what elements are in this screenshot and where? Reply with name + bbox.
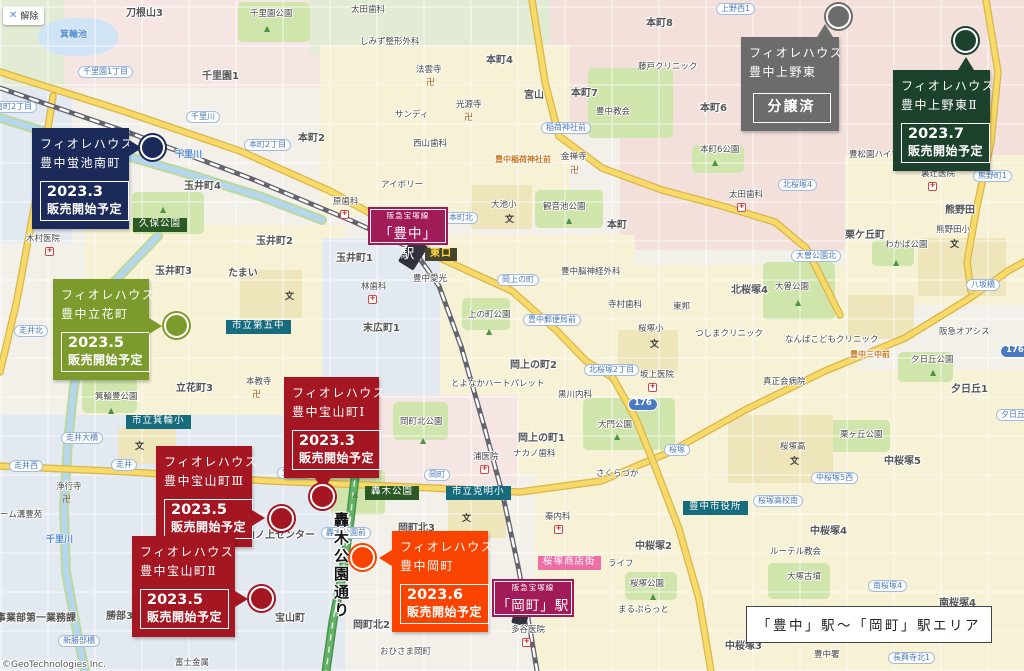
hospital-icon: ✚ xyxy=(340,210,349,219)
road-sign-label: 走井西 xyxy=(9,460,43,472)
facility-badge: 市立第五中 xyxy=(226,320,291,334)
district-label: 本町4 xyxy=(486,55,513,67)
property-marker xyxy=(826,4,851,29)
property-name-line: フィオレハウス xyxy=(901,77,985,96)
property-name-line: 豊中上野東 xyxy=(749,63,834,82)
property-name-line: 豊中宝山町Ⅱ xyxy=(140,562,230,581)
tree-icon: ▲ xyxy=(486,327,492,336)
place-label: ーム溝豊苑 xyxy=(0,511,42,521)
road-sign-label: 大曽公園北 xyxy=(791,250,841,262)
road-sign-label: 熊野町1 xyxy=(973,170,1012,182)
place-label: 富士金属 xyxy=(175,659,209,669)
place-label: 千里園公園 xyxy=(250,10,293,20)
place-label: ライフ xyxy=(608,560,634,570)
district-label: 末広町1 xyxy=(363,323,400,335)
park-badge: 轟木公園 xyxy=(365,486,419,500)
station-badge: 阪急宝塚線「岡町」駅 xyxy=(492,579,574,617)
place-label: 東邦 xyxy=(673,303,690,313)
property-callout: フィオレハウス豊中蛍池南町2023.3販売開始予定 xyxy=(32,128,129,229)
place-label: 西山歯科 xyxy=(413,140,447,150)
district-label: 宮山 xyxy=(524,90,544,102)
water-label: 箕輪池 xyxy=(60,30,87,40)
place-label: わかば公園 xyxy=(885,241,928,251)
place-label: 大門公園 xyxy=(598,421,632,431)
property-callout: フィオレハウス豊中上野東分譲済 xyxy=(741,37,839,131)
property-callout: フィオレハウス豊中宝山町Ⅰ2023.3販売開始予定 xyxy=(284,377,379,478)
tree-icon: ▲ xyxy=(566,216,572,225)
place-label: 桜塚高 xyxy=(780,443,806,453)
road-sign-label: 本町2丁目 xyxy=(244,139,291,151)
callout-pointer xyxy=(958,57,974,70)
place-label: 本教寺 xyxy=(246,378,272,388)
school-icon: 文 xyxy=(285,292,294,302)
district-label: たまい xyxy=(228,268,258,280)
map-canvas: 刀根山3千里園公園千里園1本町2玉井町4玉井町2玉井町3たまい玉井町1立花町3本… xyxy=(0,0,1024,671)
district-label: 北桜塚4 xyxy=(731,285,768,297)
property-name: フィオレハウス豊中宝山町Ⅱ xyxy=(140,543,230,580)
property-marker xyxy=(249,586,274,611)
property-callout: フィオレハウス豊中岡町2023.6販売開始予定 xyxy=(392,531,488,632)
place-label: 坂上医院 xyxy=(640,371,674,381)
callout-pointer xyxy=(252,510,265,526)
road-sign-label: 南桜塚4 xyxy=(868,580,907,592)
place-label: 太田歯科 xyxy=(351,6,385,16)
place-label: ナカノ歯科 xyxy=(513,450,556,460)
route-shield: 176 xyxy=(628,398,658,411)
school-icon: 文 xyxy=(462,514,471,524)
place-label: 金禅寺 xyxy=(561,153,587,163)
place-label: 豊中愛光 xyxy=(413,275,447,285)
sale-date: 分譲済 xyxy=(768,99,816,116)
place-label: 寺村歯科 xyxy=(608,301,642,311)
district-label: 山ノ上センター xyxy=(245,530,315,542)
place-label: 太田歯科 xyxy=(729,191,763,201)
hospital-icon: ✚ xyxy=(480,465,489,474)
district-label: 玉井町1 xyxy=(336,253,373,265)
property-callout: フィオレハウス豊中宝山町Ⅲ2023.5販売開始予定 xyxy=(156,446,252,547)
road-sign-label: 千里川 xyxy=(186,111,220,123)
place-label: 箕輪豊公園 xyxy=(95,393,138,403)
place-label: 光源寺 xyxy=(456,101,482,111)
place-label: 秦内科 xyxy=(545,513,571,523)
property-sale-date: 2023.3販売開始予定 xyxy=(292,430,381,469)
place-label: 栗ヶ丘公園 xyxy=(840,431,883,441)
sale-date: 2023.5 xyxy=(147,592,222,609)
property-marker xyxy=(140,135,165,160)
district-label: 玉井町3 xyxy=(155,266,192,278)
bus-stop-label: 豊中三中前 xyxy=(850,350,890,359)
water-label: 千里川 xyxy=(175,150,202,160)
hospital-icon: ✚ xyxy=(45,247,54,256)
sale-date: 2023.6 xyxy=(407,587,482,604)
district-label: 刀根山3 xyxy=(126,8,163,20)
district-label: 勝部3 xyxy=(106,611,133,623)
park-badge: 久保公園 xyxy=(133,218,187,232)
district-label: 本町6 xyxy=(700,103,727,115)
tree-icon: ▲ xyxy=(650,592,656,601)
hospital-icon: ✚ xyxy=(648,383,657,392)
tree-icon: ▲ xyxy=(264,24,270,33)
property-name-line: フィオレハウス xyxy=(40,135,124,154)
facility-badge: 市立克明小 xyxy=(446,486,511,500)
road-sign-label: 稲荷神社前 xyxy=(541,122,591,134)
property-sale-date: 2023.5販売開始予定 xyxy=(61,332,150,371)
road-sign-label: 北桜塚4 xyxy=(778,179,817,191)
place-label: 桜塚小 xyxy=(638,325,664,335)
sale-date: 2023.5 xyxy=(171,502,246,519)
property-name-line: フィオレハウス xyxy=(292,384,374,403)
station-line-name: 阪急宝塚線 xyxy=(496,582,570,593)
district-label: 岡上の町2 xyxy=(510,360,557,372)
property-name-line: フィオレハウス xyxy=(164,453,247,472)
sale-date: 2023.3 xyxy=(47,184,122,201)
place-label: 岡町北公園 xyxy=(400,418,443,428)
place-label: つしまクリニック xyxy=(695,330,763,340)
road-sign-label: 上野西1 xyxy=(716,3,755,15)
school-icon: 文 xyxy=(790,457,799,467)
district-label: 玉井町4 xyxy=(184,181,221,193)
place-label: 豊中脳神経外科 xyxy=(561,268,621,278)
hospital-icon: ✚ xyxy=(928,182,937,191)
facility-badge: 豊中市役所 xyxy=(683,501,748,515)
sale-status-text: 販売開始予定 xyxy=(908,144,983,159)
road-sign-label: 走井大橋 xyxy=(61,432,103,444)
road-sign-label: 南町2丁目 xyxy=(0,101,37,113)
facility-badge: 市立箕輪小 xyxy=(126,415,191,429)
district-label: 本町7 xyxy=(571,88,598,100)
place-label: とよなかハートパレット xyxy=(451,380,545,390)
place-label: サンディ xyxy=(395,111,428,121)
property-name-line: 豊中蛍池南町 xyxy=(40,154,124,173)
district-label: 栗ケ丘町 xyxy=(845,230,885,242)
area-title-banner: 「豊中」駅～「岡町」駅エリア xyxy=(746,606,992,643)
property-name-line: 豊中上野東Ⅱ xyxy=(901,96,985,115)
close-icon: ✕ xyxy=(9,10,17,21)
place-label: 豊中署 xyxy=(814,651,840,661)
district-label: 岡上の町1 xyxy=(518,433,565,445)
place-label: 原歯科 xyxy=(333,198,359,208)
sale-status-text: 販売開始予定 xyxy=(47,202,122,217)
place-label: 浦医院 xyxy=(473,453,499,463)
temple-icon: 卍 xyxy=(464,113,473,123)
clear-button[interactable]: ✕ 解除 xyxy=(3,7,44,25)
place-label: 熊野田小 xyxy=(936,226,970,236)
road-sign-label: 中桜塚5西 xyxy=(811,472,858,484)
property-name-line: フィオレハウス xyxy=(61,286,144,305)
callout-pointer xyxy=(235,591,248,607)
property-name: フィオレハウス豊中上野東Ⅱ xyxy=(901,77,985,114)
road-sign-label: 走井北 xyxy=(14,325,48,337)
place-label: 阪急オアシス xyxy=(939,328,990,338)
road-sign-label: 岡町 xyxy=(424,469,450,481)
place-label: 夕日丘公園 xyxy=(911,356,954,366)
place-label: 法雲寺 xyxy=(416,66,442,76)
school-icon: 文 xyxy=(505,215,514,225)
district-label: 中桜塚4 xyxy=(810,526,847,538)
temple-icon: 卍 xyxy=(62,495,71,505)
district-label: 玉井町2 xyxy=(256,236,293,248)
school-icon: 文 xyxy=(950,240,959,250)
sale-date: 2023.5 xyxy=(68,335,143,352)
property-sale-date: 2023.6販売開始予定 xyxy=(400,584,489,623)
water-label: 千里川 xyxy=(46,535,73,545)
property-callout: フィオレハウス豊中宝山町Ⅱ2023.5販売開始予定 xyxy=(132,536,235,637)
property-sale-date: 2023.5販売開始予定 xyxy=(140,589,229,628)
place-label: おひさま岡町 xyxy=(380,648,431,658)
place-label: 黒川内科 xyxy=(558,391,592,401)
map-attribution: ©GeoTechnologies Inc. xyxy=(2,660,106,670)
property-name: フィオレハウス豊中岡町 xyxy=(400,538,483,575)
place-label: 藤戸クリニック xyxy=(638,63,698,73)
place-label: 上の町公園 xyxy=(468,311,511,321)
district-label: 千里園1 xyxy=(202,71,239,83)
district-label: 夕日丘1 xyxy=(951,384,988,396)
property-marker xyxy=(953,28,978,53)
sale-status-text: 販売開始予定 xyxy=(171,520,246,535)
tree-icon: ▲ xyxy=(795,298,801,307)
district-label: 中桜塚2 xyxy=(635,541,672,553)
hospital-icon: ✚ xyxy=(368,295,377,304)
school-icon: 文 xyxy=(650,340,659,350)
place-label: まるぷらっと xyxy=(618,606,669,616)
road-sign-label: 本町北 xyxy=(444,212,478,224)
property-callout: フィオレハウス豊中上野東Ⅱ2023.7販売開始予定 xyxy=(893,70,990,171)
road-sign-label: 北桜塚2丁目 xyxy=(584,364,639,376)
place-label: 桜塚公園 xyxy=(630,580,664,590)
property-marker xyxy=(269,506,294,531)
district-label: 立花町3 xyxy=(176,383,213,395)
property-marker xyxy=(164,313,189,338)
road-sign-label: 夕日丘 xyxy=(996,409,1024,421)
tree-icon: ▲ xyxy=(712,158,718,167)
place-label: 大曽公園 xyxy=(775,283,809,293)
property-sale-date: 2023.5販売開始予定 xyxy=(164,499,253,538)
shopping-street-badge: 桜塚商店街 xyxy=(538,556,601,570)
road-sign-label: 千里園1丁目 xyxy=(78,66,133,78)
hospital-icon: ✚ xyxy=(522,638,531,647)
callout-pointer xyxy=(149,318,162,334)
clear-button-label: 解除 xyxy=(20,9,38,22)
sale-status-text: 販売開始予定 xyxy=(299,451,374,466)
place-label: さくらづか xyxy=(596,470,639,480)
property-name-line: 豊中立花町 xyxy=(61,305,144,324)
tree-icon: ▲ xyxy=(352,490,358,499)
property-name: フィオレハウス豊中宝山町Ⅲ xyxy=(164,453,247,490)
sale-status-text: 販売開始予定 xyxy=(147,610,222,625)
road-name-vertical: 轟木公園通り xyxy=(331,512,352,620)
property-name-line: フィオレハウス xyxy=(749,44,834,63)
place-label: 大塚古墳 xyxy=(787,573,821,583)
place-label: 多谷医院 xyxy=(511,626,545,636)
district-label: 宝山町 xyxy=(275,613,305,625)
place-label: 真正会病院 xyxy=(763,378,806,388)
sale-status-text: 販売開始予定 xyxy=(407,605,482,620)
road-sign-label: 長興寺北1 xyxy=(888,652,935,664)
callout-pointer xyxy=(379,550,392,566)
tree-icon: ▲ xyxy=(930,368,936,377)
bus-stop-label: 豊中稲荷神社前 xyxy=(495,155,551,164)
property-status-sold: 分譲済 xyxy=(753,93,831,123)
sale-date: 2023.3 xyxy=(299,433,374,450)
district-label: 熊野田 xyxy=(945,205,975,217)
tree-icon: ▲ xyxy=(420,436,426,445)
property-name: フィオレハウス豊中立花町 xyxy=(61,286,144,323)
district-label: 事業部第一業務課 xyxy=(0,613,76,625)
property-name: フィオレハウス豊中上野東 xyxy=(749,44,834,81)
station-name: 「豊中」駅 xyxy=(372,222,444,262)
station-badge: 阪急宝塚線「豊中」駅 xyxy=(368,207,448,245)
road-sign-label: 豊中郵便局前 xyxy=(523,314,581,326)
property-name: フィオレハウス豊中蛍池南町 xyxy=(40,135,124,172)
place-label: アイボリー xyxy=(381,181,423,191)
district-label: 中桜塚5 xyxy=(884,456,921,468)
tree-icon: ▲ xyxy=(160,205,166,214)
road-sign-label: 桜塚 xyxy=(664,444,690,456)
property-sale-date: 2023.7販売開始予定 xyxy=(901,123,990,162)
station-name: 「岡町」駅 xyxy=(496,594,570,614)
road-sign-label: 八坂橋 xyxy=(966,279,1000,291)
place-label: 林歯科 xyxy=(361,283,387,293)
district-label: 本町8 xyxy=(646,18,673,30)
property-callout: フィオレハウス豊中立花町2023.5販売開始予定 xyxy=(53,279,149,380)
property-name-line: 豊中岡町 xyxy=(400,557,483,576)
place-label: 木村医院 xyxy=(26,235,60,245)
temple-icon: 卍 xyxy=(252,390,261,400)
tree-icon: ▲ xyxy=(893,258,899,267)
property-marker xyxy=(350,545,375,570)
route-shield: 176 xyxy=(1000,345,1024,358)
road-sign-label: 桜塚高校南 xyxy=(753,495,803,507)
place-label: 観音池公園 xyxy=(543,203,586,213)
property-sale-date: 2023.3販売開始予定 xyxy=(40,181,129,220)
property-name-line: 豊中宝山町Ⅲ xyxy=(164,472,247,491)
place-label: 大池小 xyxy=(491,201,517,211)
place-label: 浄行寺 xyxy=(56,483,82,493)
sale-date: 2023.7 xyxy=(908,126,983,143)
temple-icon: 卍 xyxy=(570,166,579,176)
property-name-line: 豊中宝山町Ⅰ xyxy=(292,403,374,422)
district-label: 岡町北2 xyxy=(353,620,390,632)
place-label: なんばこどもクリニック xyxy=(785,336,879,346)
property-name-line: フィオレハウス xyxy=(400,538,483,557)
property-name-line: フィオレハウス xyxy=(140,543,230,562)
hospital-icon: ✚ xyxy=(554,525,563,534)
road-sign-label: 走井 xyxy=(111,459,137,471)
tree-icon: ▲ xyxy=(108,406,114,415)
tree-icon: ▲ xyxy=(614,432,620,441)
temple-icon: 卍 xyxy=(426,78,435,88)
station-line-name: 阪急宝塚線 xyxy=(372,210,444,221)
district-label: 本町 xyxy=(607,220,627,232)
road-sign-label: 岡上の町 xyxy=(497,274,539,286)
property-marker xyxy=(310,484,335,509)
sale-status-text: 販売開始予定 xyxy=(68,353,143,368)
school-icon: 文 xyxy=(135,442,144,452)
place-label: しみず整形外科 xyxy=(360,38,420,48)
place-label: 豊中教会 xyxy=(596,108,630,118)
district-label: 本町2 xyxy=(298,133,325,145)
property-name: フィオレハウス豊中宝山町Ⅰ xyxy=(292,384,374,421)
place-label: 本町6公園 xyxy=(700,146,739,156)
place-label: ルーテル教会 xyxy=(770,548,821,558)
hospital-icon: ✚ xyxy=(737,203,746,212)
place-label: 裏辻医院 xyxy=(921,170,955,180)
road-sign-label: 新勝部橋 xyxy=(58,635,100,647)
